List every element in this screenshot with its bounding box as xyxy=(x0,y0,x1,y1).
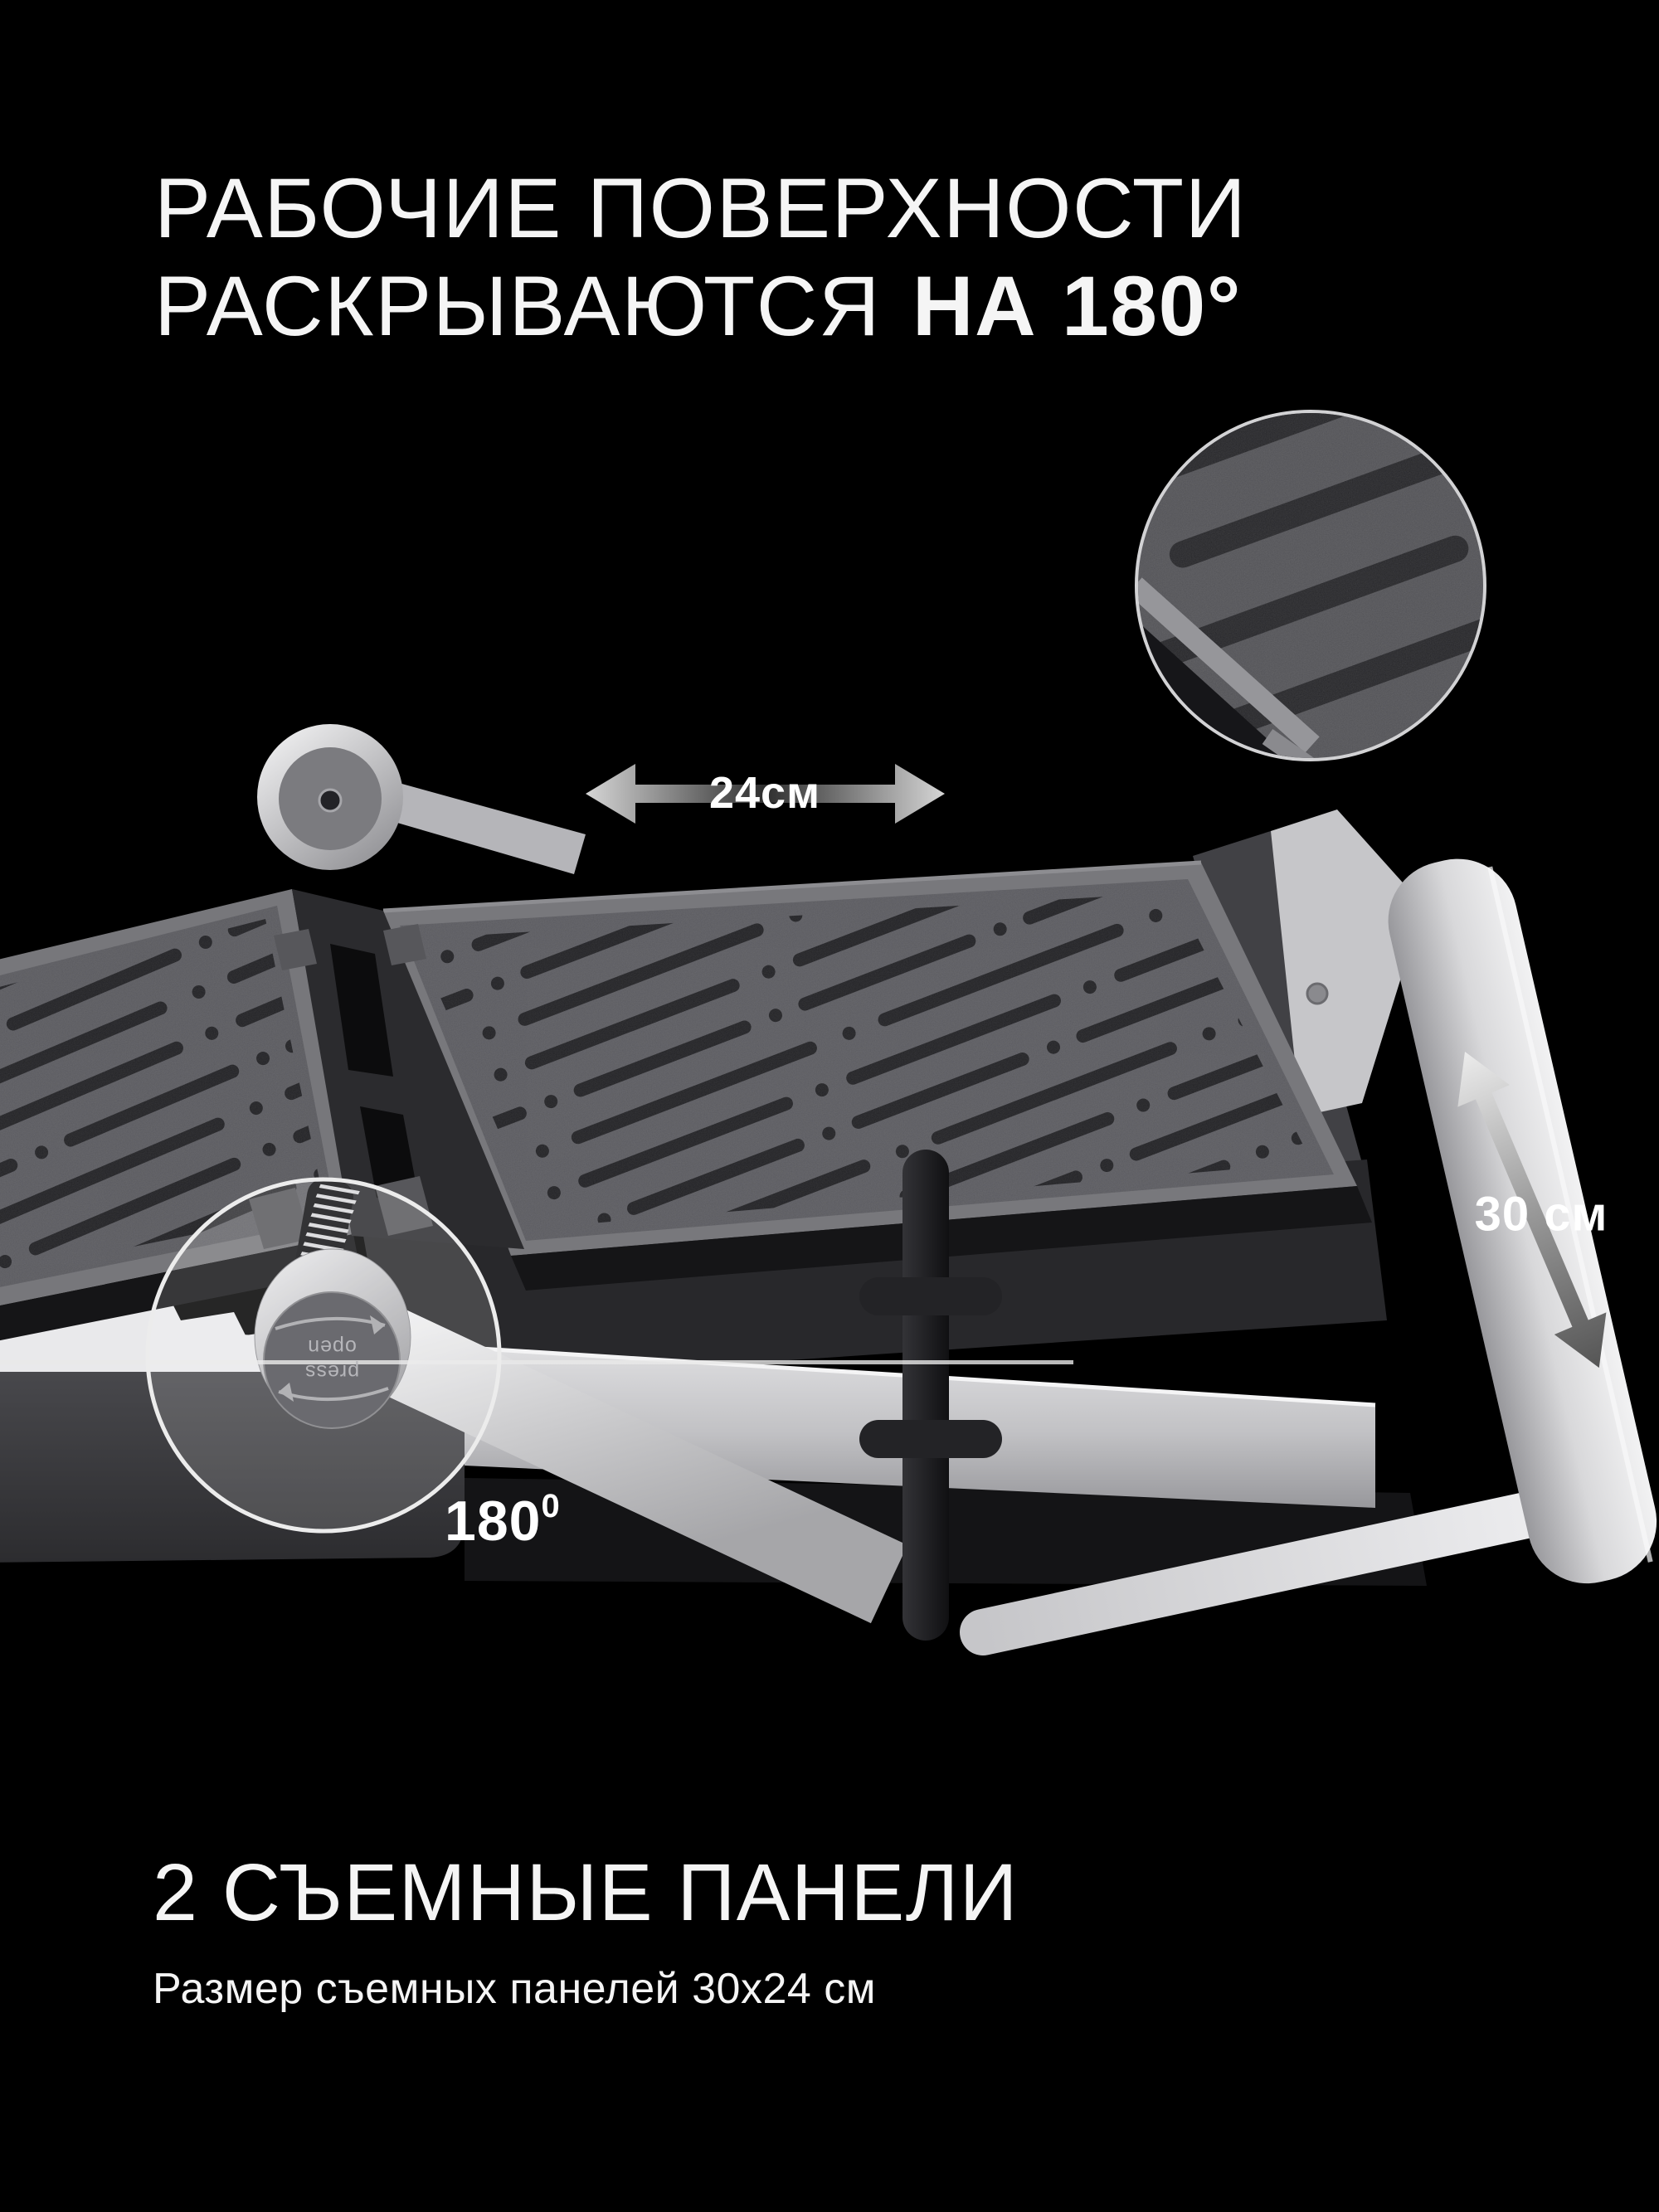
title-line1: РАБОЧИЕ ПОВЕРХНОСТИ xyxy=(154,161,1247,255)
page-title: РАБОЧИЕ ПОВЕРХНОСТИ РАСКРЫВАЮТСЯ НА 180° xyxy=(154,159,1247,356)
height-dimension-label: 30 см xyxy=(1475,1187,1608,1242)
angle-label: 1800 xyxy=(445,1488,561,1553)
width-dimension-label: 24см xyxy=(709,767,820,819)
title-line2-regular: РАСКРЫВАЮТСЯ xyxy=(154,259,881,353)
hinge-cylinder xyxy=(257,724,403,870)
product-card: РАБОЧИЕ ПОВЕРХНОСТИ РАСКРЫВАЮТСЯ НА 180°… xyxy=(0,0,1659,2212)
footer-subtitle: Размер съемных панелей 30х24 см xyxy=(153,1964,876,2014)
footer-heading: 2 СЪЕМНЫЕ ПАНЕЛИ xyxy=(153,1846,1019,1939)
title-line2-bold: НА 180° xyxy=(912,259,1242,353)
mount-screw xyxy=(1307,984,1327,1004)
dial-press-open-label: press open xyxy=(304,1334,359,1384)
